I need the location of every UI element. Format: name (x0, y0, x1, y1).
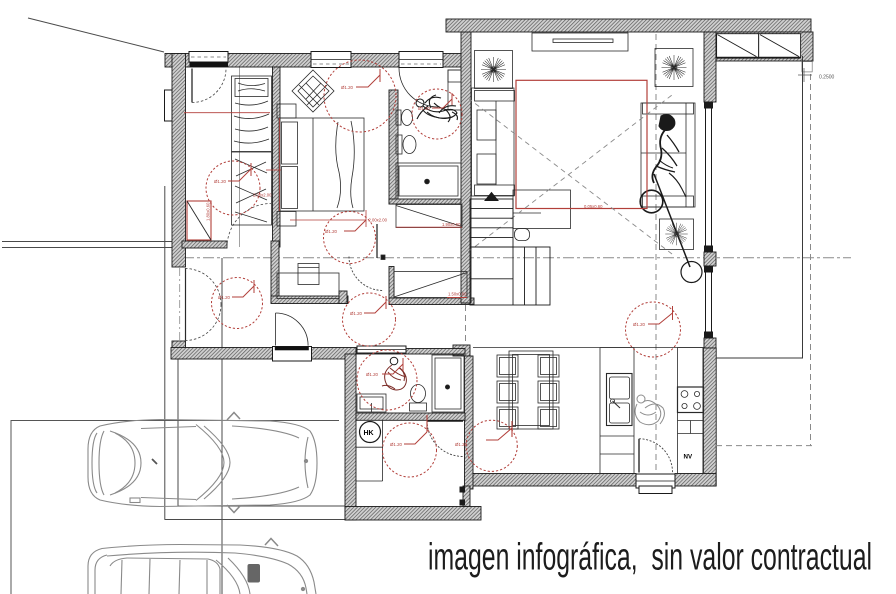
svg-text:Ø1.20: Ø1.20 (325, 229, 338, 234)
svg-text:Ø1.20: Ø1.20 (214, 179, 227, 184)
svg-text:1.50x0.60: 1.50x0.60 (448, 292, 467, 297)
svg-text:1.90x0.60: 1.90x0.60 (442, 222, 461, 227)
svg-text:2.00x2.00: 2.00x2.00 (369, 218, 388, 223)
svg-text:2.00x2.00: 2.00x2.00 (253, 193, 272, 198)
svg-text:Ø1.20: Ø1.20 (418, 106, 431, 111)
svg-text:Ø1.20: Ø1.20 (633, 322, 646, 327)
svg-text:1.80x0.60: 1.80x0.60 (206, 202, 211, 221)
svg-text:Ø1.20: Ø1.20 (366, 372, 379, 377)
svg-text:Ø1.20: Ø1.20 (350, 311, 363, 316)
svg-text:NV: NV (684, 454, 693, 461)
svg-text:Ø1.20: Ø1.20 (341, 85, 354, 90)
svg-text:HK: HK (364, 430, 374, 437)
svg-text:Ø1.20: Ø1.20 (218, 295, 231, 300)
svg-text:Ø1.20: Ø1.20 (455, 442, 468, 447)
svg-text:0.2500: 0.2500 (819, 75, 835, 81)
svg-text:imagen infográfica, sin valor: imagen infográfica, sin valor contractua… (428, 537, 872, 579)
svg-text:Ø1.20: Ø1.20 (390, 442, 403, 447)
